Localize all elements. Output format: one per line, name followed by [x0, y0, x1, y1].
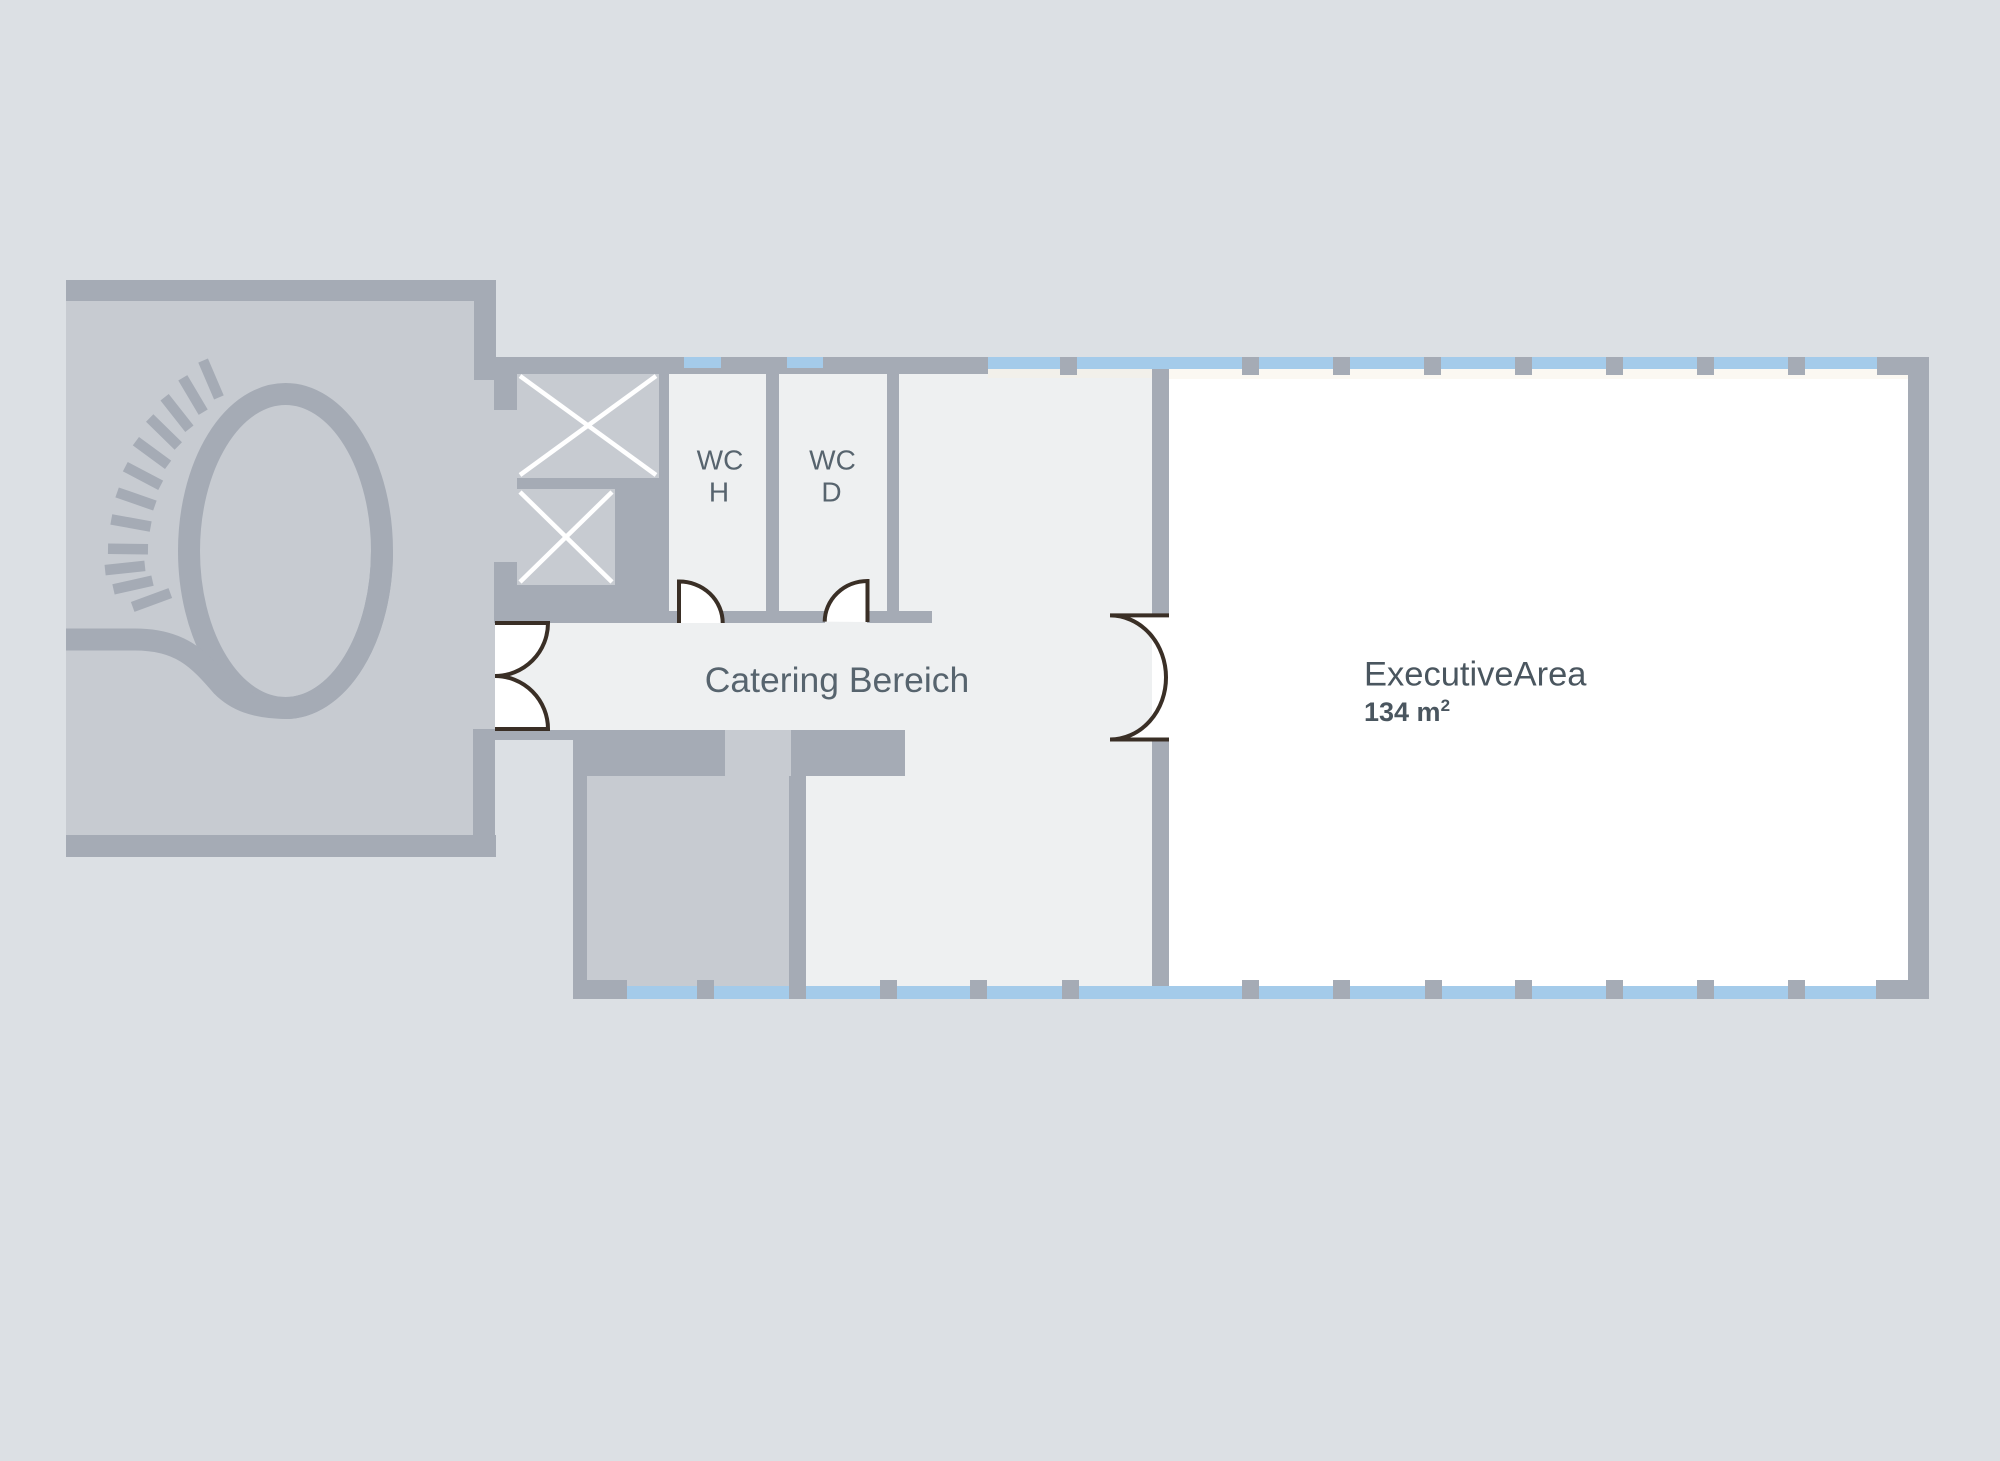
svg-text:ExecutiveArea: ExecutiveArea	[1364, 656, 1587, 694]
svg-text:134 m2: 134 m2	[1364, 696, 1450, 727]
svg-text:H: H	[709, 477, 729, 508]
svg-text:D: D	[821, 477, 841, 508]
svg-text:WC: WC	[809, 445, 856, 476]
svg-text:Catering Bereich: Catering Bereich	[705, 660, 969, 700]
svg-text:WC: WC	[697, 445, 744, 476]
